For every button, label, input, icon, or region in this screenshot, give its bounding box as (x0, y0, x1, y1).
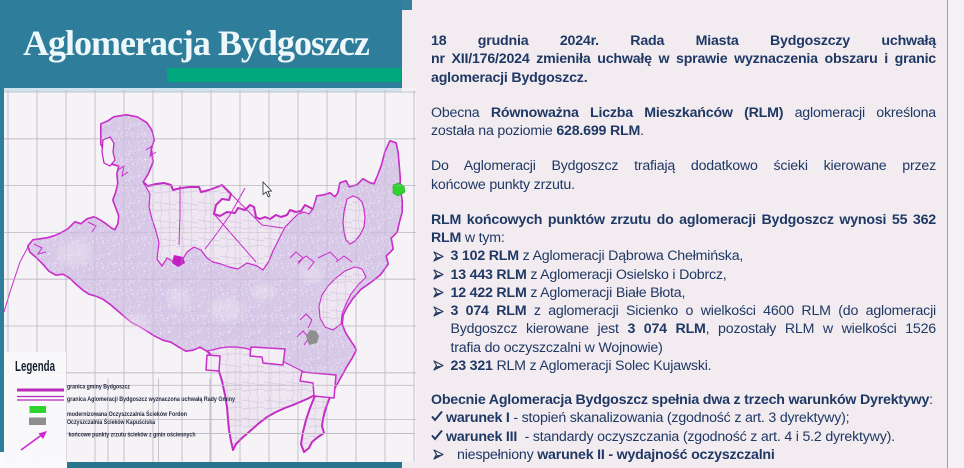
svg-text:modernizowana Oczyszczalnia Śc: modernizowana Oczyszczalnia Ścieków Ford… (67, 409, 187, 418)
svg-text:granica Aglomeracji Bydgoszcz: granica Aglomeracji Bydgoszcz wyznaczona… (67, 396, 235, 403)
svg-text:końcowe punkty zrzutu ścieków: końcowe punkty zrzutu ścieków z gmin ośc… (69, 432, 196, 439)
svg-text:Oczyszczalnia Ścieków Kapuścis: Oczyszczalnia Ścieków Kapuściska (67, 417, 155, 426)
svg-text:Legenda: Legenda (15, 359, 56, 375)
svg-text:granica gminy Bydgoszcz: granica gminy Bydgoszcz (67, 384, 130, 391)
